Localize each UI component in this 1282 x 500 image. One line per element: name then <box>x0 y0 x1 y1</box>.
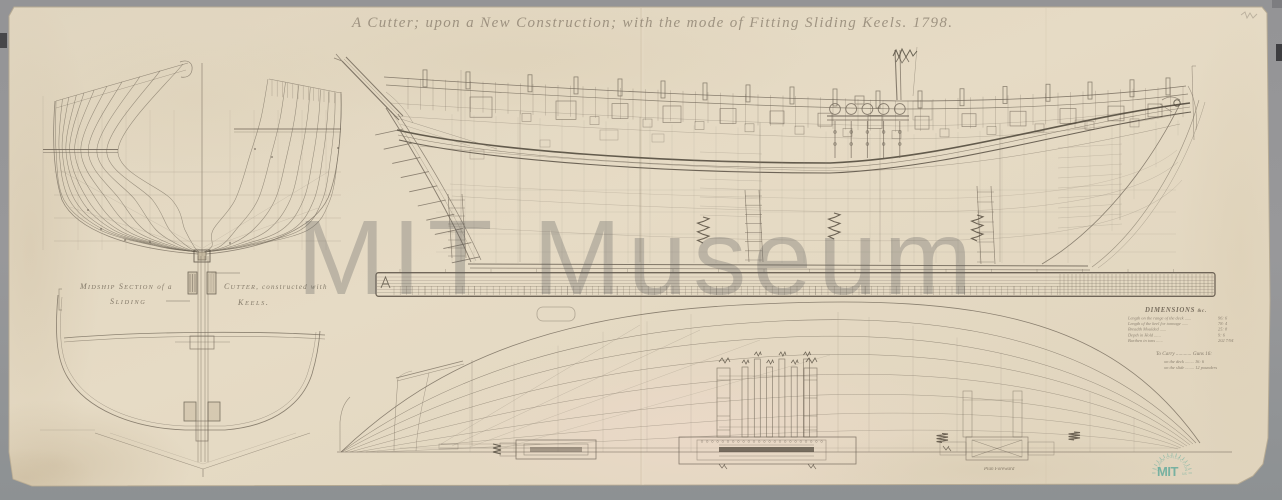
svg-text:Plan Foreward: Plan Foreward <box>983 467 1015 472</box>
svg-text:KEELS.: KEELS. <box>237 298 270 307</box>
svg-text:DIMENSIONS &c.: DIMENSIONS &c. <box>1144 307 1207 314</box>
svg-text:us: us <box>1182 471 1188 476</box>
svg-text:on the slide ........ 12 pound: on the slide ........ 12 pounders <box>1164 365 1217 370</box>
svg-text:202 7/94: 202 7/94 <box>1218 338 1234 343</box>
svg-text:Breadth Moulded ......: Breadth Moulded ...... <box>1128 327 1166 332</box>
svg-text:SLIDING: SLIDING <box>110 297 147 306</box>
svg-text:A Cutter; upon a New Construct: A Cutter; upon a New Construction; with … <box>351 15 952 31</box>
svg-text:Length of the keel for tonnage: Length of the keel for tonnage ...... <box>1127 321 1188 326</box>
svg-text:To Carry ............ Guns 16:: To Carry ............ Guns 16: <box>1156 351 1212 357</box>
svg-text:MIT Museum: MIT Museum <box>297 199 979 317</box>
svg-text:78: 4: 78: 4 <box>1218 321 1228 326</box>
svg-text:96: 6: 96: 6 <box>1218 316 1228 321</box>
svg-text:25: 8: 25: 8 <box>1218 327 1228 332</box>
svg-text:MIDSHIP SECTION of a: MIDSHIP SECTION of a <box>79 282 173 291</box>
svg-text:Length on the range of the dec: Length on the range of the deck ...... <box>1127 316 1191 321</box>
svg-text:Burthen in tons ......: Burthen in tons ...... <box>1128 338 1163 343</box>
svg-text:MIT: MIT <box>1157 464 1178 479</box>
svg-text:Depth in Hold ......: Depth in Hold ...... <box>1127 332 1161 337</box>
svg-text:9: 6: 9: 6 <box>1218 332 1226 337</box>
svg-text:on the deck ........ 16: 6: on the deck ........ 16: 6 <box>1164 359 1205 364</box>
